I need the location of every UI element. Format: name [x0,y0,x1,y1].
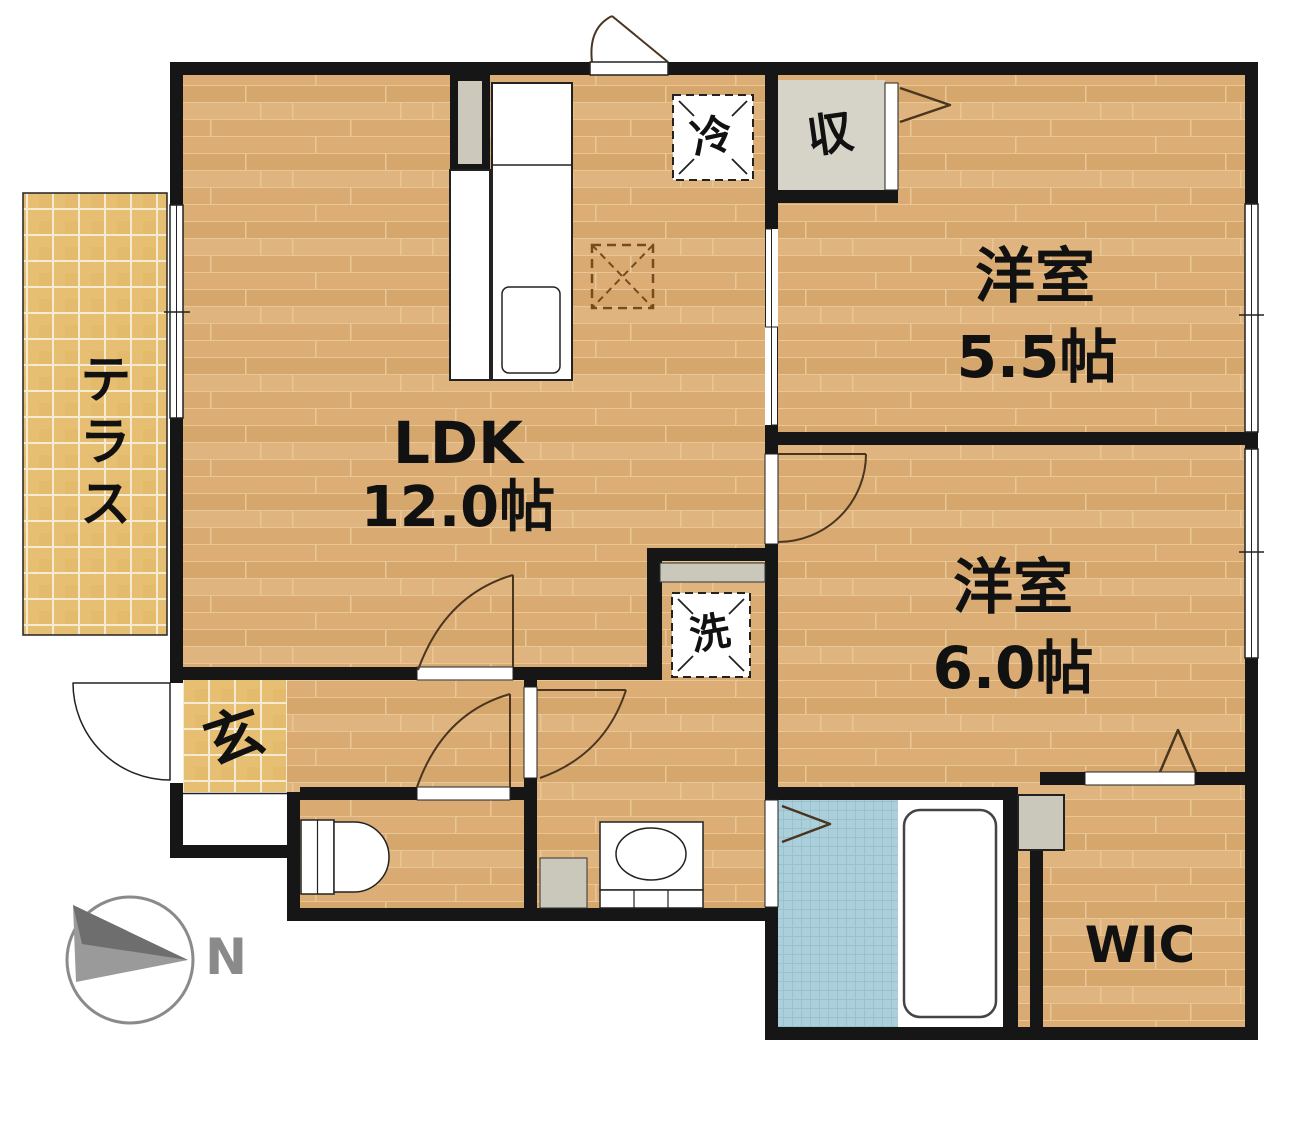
north-compass-icon [67,897,193,1023]
closet-label: 収 [804,108,856,160]
wall-between-rooms [778,432,1245,445]
kitchen-counter-side [450,170,490,380]
toilet [301,820,389,894]
room55-label: 洋室 [975,247,1095,307]
bathtub [904,810,996,1017]
wall-bath-top [765,787,1018,800]
sliding-door-ldk-room55 [765,229,778,425]
wall-ldk-bottom [170,667,662,680]
wall-bottom-left [170,845,300,858]
wall-top [170,62,1258,75]
ldk-label: LDK [393,414,523,472]
room60-size-label: 6.0帖 [933,639,1094,697]
floor-plan: テラス LDK 12.0帖 洋室 5.5帖 洋室 6.0帖 WIC 玄 冷 収 … [0,0,1304,1126]
room60-label: 洋室 [953,558,1073,618]
terrace-label: テラス [74,352,126,538]
bath-corner-unit [1018,795,1064,850]
room55-size-label: 5.5帖 [957,328,1118,386]
wall-closet-bottom [765,190,898,203]
kitchen [450,75,572,380]
laundry-label: 洗 [687,611,733,657]
washroom-pad [540,858,587,908]
refrigerator-label: 冷 [687,112,737,162]
washbasin [600,822,703,908]
kitchen-sink [502,287,560,373]
wall-wic-left [1030,848,1043,1027]
entrance-door [73,683,183,783]
wic-label: WIC [1085,920,1195,970]
wall-bottom-right [765,1027,1258,1040]
ldk-size-label: 12.0帖 [361,480,555,536]
bathroom-floor [778,800,898,1027]
back-door [590,16,668,75]
compass-north-label: N [205,932,247,982]
shelf [660,563,765,582]
